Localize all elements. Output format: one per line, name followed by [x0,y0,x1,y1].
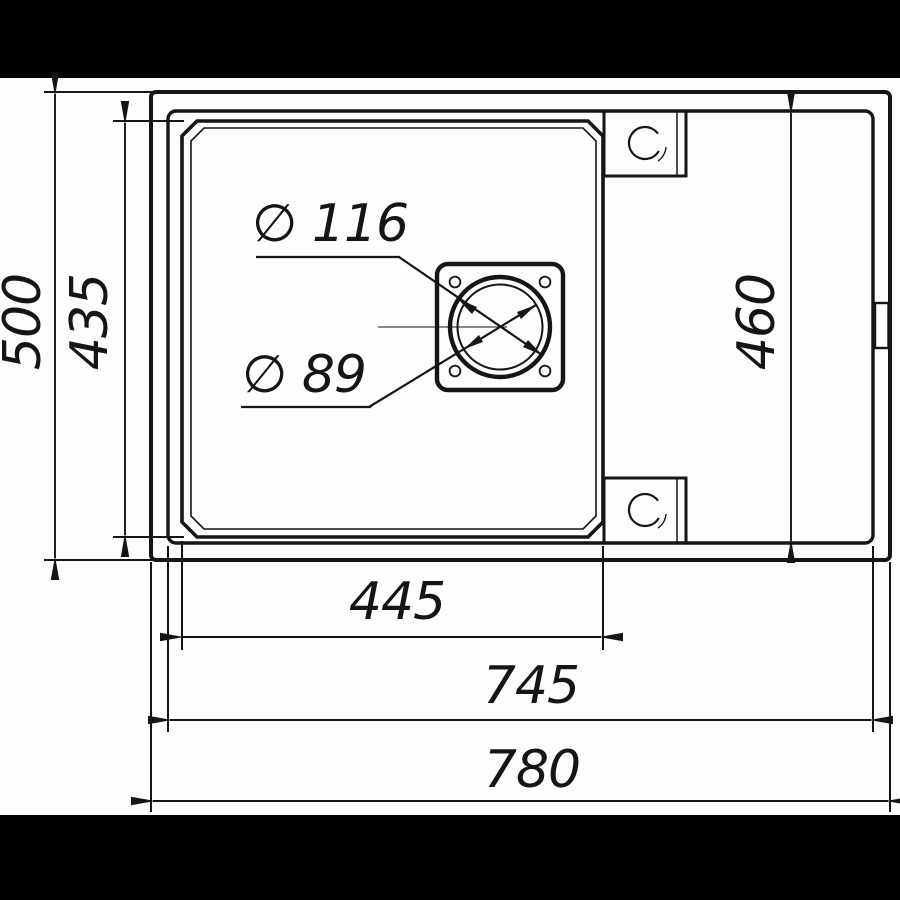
extension-lines [44,92,890,812]
drain-screw-hole [450,277,461,288]
mounting-clip-top [604,111,686,176]
dim-label-500: 500 [0,274,53,370]
rim-tab [875,303,889,348]
drain-screw-hole [450,366,461,377]
dim-label-745: 745 [483,656,579,716]
clip-body [604,478,686,543]
dim-label-drain-outer: ∅ 116 [252,194,408,254]
clip-hole-arc [658,514,666,528]
clip-body [604,111,686,176]
letterbox-bottom [0,815,900,900]
dim-label-drain-inner: ∅ 89 [242,345,366,405]
sink-technical-drawing: 500 435 460 445 745 780 ∅ 116 ∅ 89 [0,0,900,900]
dim-label-780: 780 [484,740,580,800]
arrowhead [517,305,536,319]
dim-label-445: 445 [349,572,445,632]
dimension-lines [55,94,888,801]
arrowhead [464,335,483,349]
mounting-clip-bottom [604,478,686,543]
dim-label-460: 460 [727,274,787,370]
letterbox-top [0,0,900,78]
drawing-page: 500 435 460 445 745 780 ∅ 116 ∅ 89 [0,0,900,900]
drain-screw-hole [540,366,551,377]
clip-hole-arc [658,147,666,161]
bowl-outline [182,121,603,537]
dim-label-435: 435 [60,274,120,370]
bowl-inner-outline [191,128,596,529]
drain-screw-hole [540,277,551,288]
